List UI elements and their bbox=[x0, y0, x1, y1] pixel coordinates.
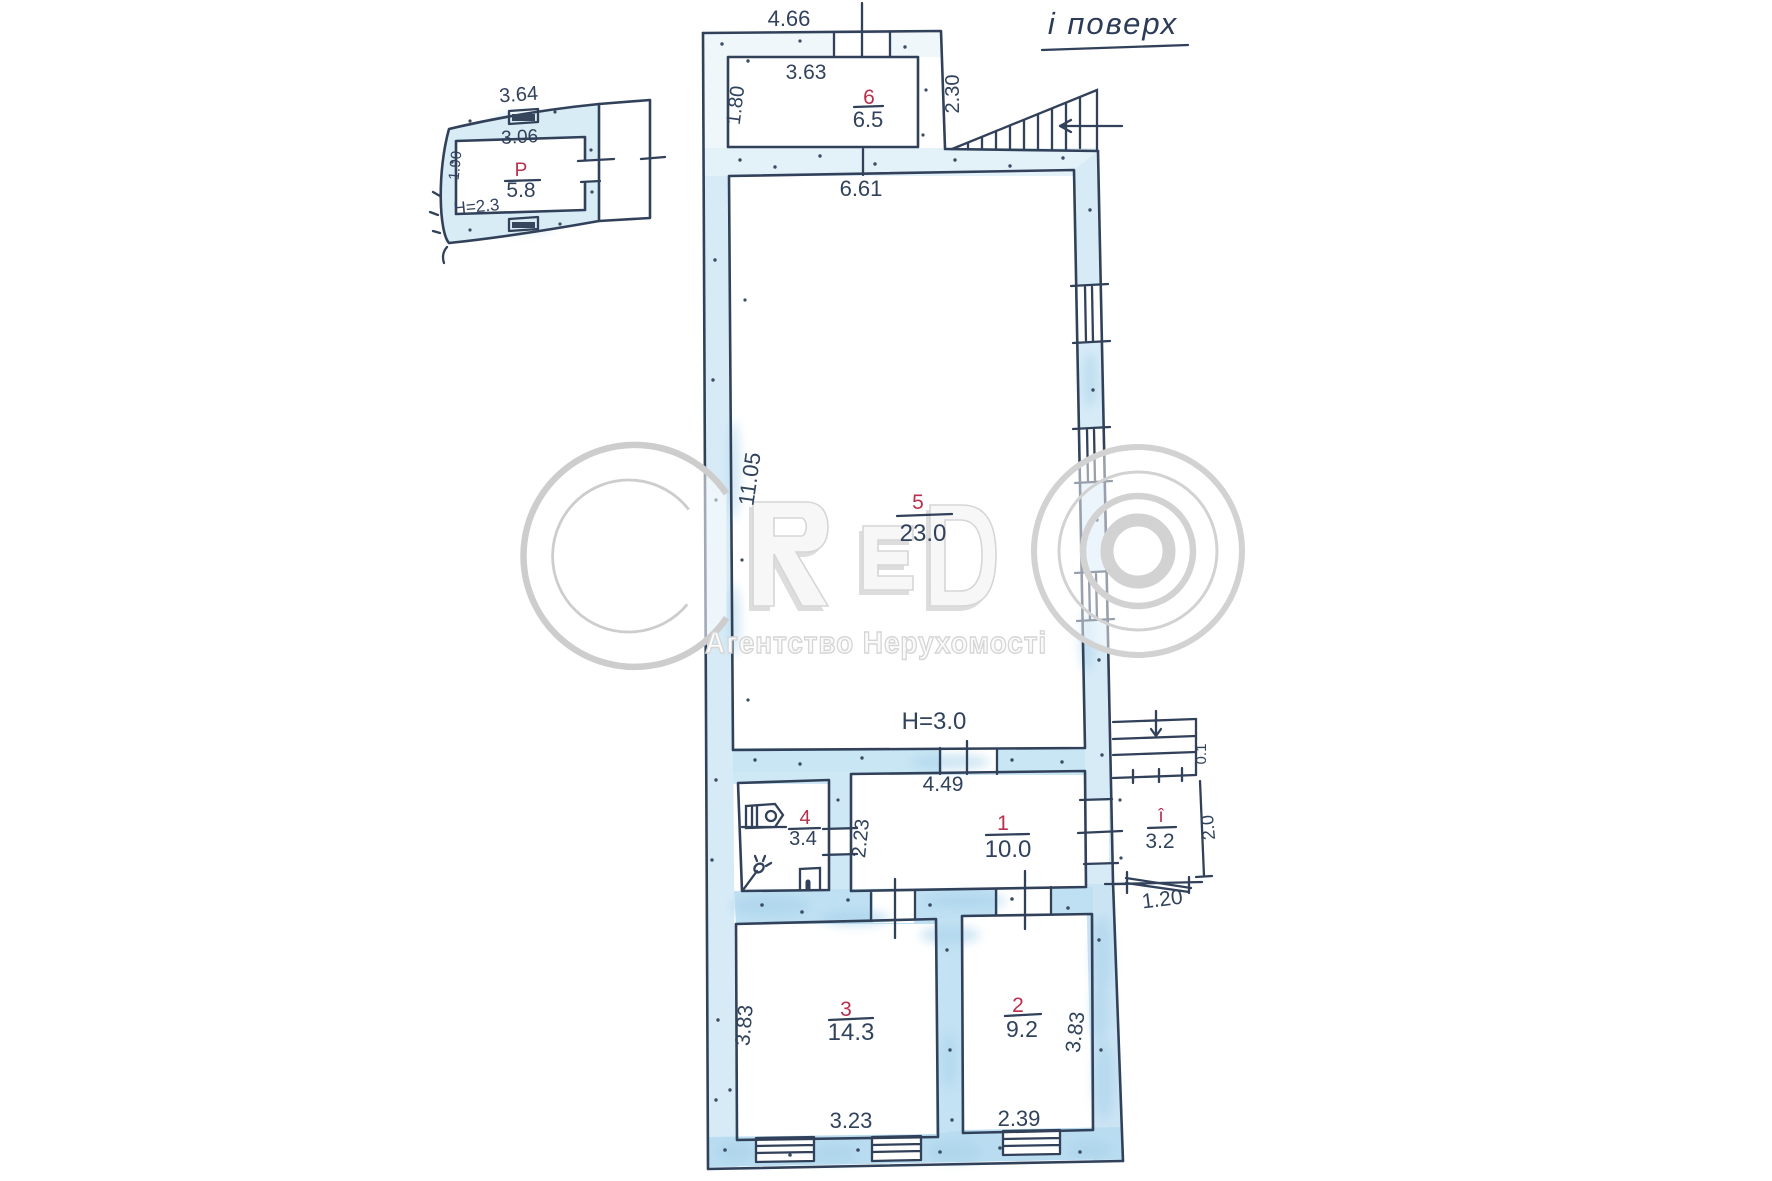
svg-text:4.66: 4.66 bbox=[768, 6, 811, 31]
svg-text:2.0: 2.0 bbox=[1197, 814, 1219, 841]
svg-text:3.4: 3.4 bbox=[789, 828, 817, 850]
svg-text:4: 4 bbox=[799, 807, 810, 829]
svg-text:5: 5 bbox=[912, 491, 924, 514]
svg-text:Агентство Нерухомості: Агентство Нерухомості bbox=[705, 625, 1047, 660]
svg-text:2: 2 bbox=[1012, 994, 1024, 1017]
svg-text:6.61: 6.61 bbox=[840, 176, 883, 201]
svg-text:3.64: 3.64 bbox=[498, 83, 538, 108]
svg-text:2.23: 2.23 bbox=[848, 818, 874, 859]
svg-text:9.2: 9.2 bbox=[1006, 1016, 1038, 1042]
svg-text:3.63: 3.63 bbox=[786, 61, 827, 84]
svg-text:14.3: 14.3 bbox=[828, 1019, 875, 1046]
svg-text:î: î bbox=[1157, 806, 1164, 827]
svg-text:1.90: 1.90 bbox=[446, 150, 466, 181]
svg-text:1: 1 bbox=[997, 812, 1009, 835]
svg-text:3.06: 3.06 bbox=[501, 126, 539, 149]
svg-text:4.49: 4.49 bbox=[923, 773, 964, 796]
svg-text:3.2: 3.2 bbox=[1145, 830, 1174, 853]
svg-text:і поверх: і поверх bbox=[1048, 6, 1178, 41]
svg-text:3.83: 3.83 bbox=[731, 1004, 757, 1047]
svg-text:3: 3 bbox=[840, 998, 852, 1021]
svg-text:H=2.3: H=2.3 bbox=[453, 195, 500, 218]
svg-text:10.0: 10.0 bbox=[985, 836, 1032, 863]
svg-text:3.23: 3.23 bbox=[830, 1108, 873, 1133]
svg-text:H=3.0: H=3.0 bbox=[902, 708, 967, 735]
svg-text:0.1: 0.1 bbox=[1193, 744, 1210, 765]
svg-text:2.30: 2.30 bbox=[942, 75, 964, 114]
svg-text:1.80: 1.80 bbox=[723, 85, 750, 126]
svg-text:6.5: 6.5 bbox=[853, 107, 884, 132]
svg-text:23.0: 23.0 bbox=[900, 520, 947, 547]
svg-text:2.39: 2.39 bbox=[998, 1106, 1041, 1131]
svg-text:5.8: 5.8 bbox=[506, 179, 535, 202]
svg-text:Р: Р bbox=[515, 160, 528, 181]
